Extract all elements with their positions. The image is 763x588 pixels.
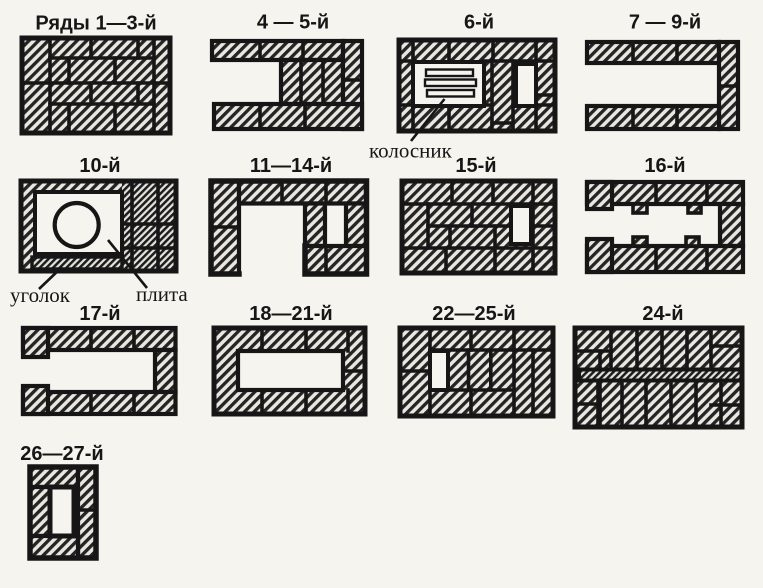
svg-text:24-й: 24-й <box>642 303 683 325</box>
svg-text:16-й: 16-й <box>644 155 685 177</box>
svg-text:15-й: 15-й <box>455 155 496 177</box>
svg-text:7 — 9-й: 7 — 9-й <box>629 12 701 34</box>
svg-text:уголок: уголок <box>10 283 71 307</box>
svg-text:18—21-й: 18—21-й <box>249 303 332 325</box>
svg-text:плита: плита <box>136 282 188 306</box>
svg-text:17-й: 17-й <box>79 303 120 325</box>
svg-text:4 — 5-й: 4 — 5-й <box>257 12 329 34</box>
svg-text:26—27-й: 26—27-й <box>20 443 103 465</box>
svg-text:Ряды 1—3-й: Ряды 1—3-й <box>35 13 156 35</box>
svg-text:6-й: 6-й <box>464 12 494 34</box>
svg-text:колосник: колосник <box>369 139 453 163</box>
svg-text:11—14-й: 11—14-й <box>250 155 332 177</box>
svg-text:10-й: 10-й <box>79 155 120 177</box>
svg-text:22—25-й: 22—25-й <box>432 303 515 325</box>
